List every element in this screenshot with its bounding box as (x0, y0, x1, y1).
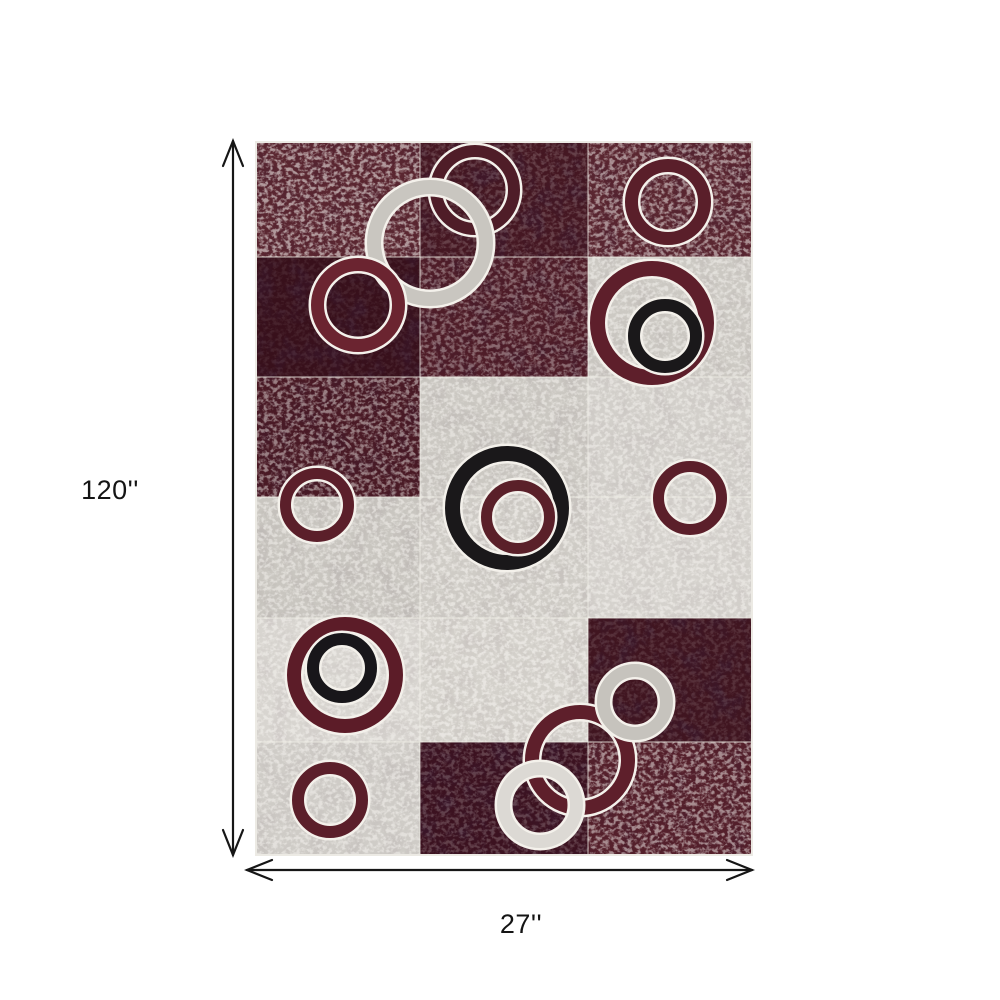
rug (255, 141, 753, 856)
width-dimension-arrow (247, 860, 752, 880)
rug-cell-r1c1 (420, 257, 588, 377)
width-dimension-label: 27'' (488, 911, 554, 938)
height-dimension-label: 120'' (66, 477, 154, 504)
height-dimension-arrow (223, 141, 243, 855)
product-dimension-image: 120'' 27'' (0, 0, 1000, 1000)
